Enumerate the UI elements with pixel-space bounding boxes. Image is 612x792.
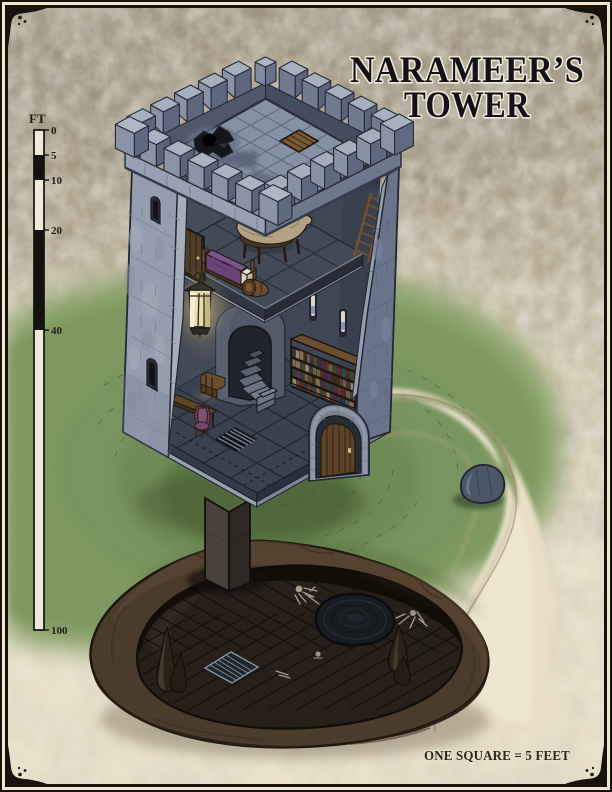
svg-text:100: 100 <box>51 625 68 637</box>
svg-text:40: 40 <box>51 325 63 337</box>
svg-text:10: 10 <box>51 175 63 187</box>
svg-text:ONE SQUARE = 5 FEET: ONE SQUARE = 5 FEET <box>424 749 570 764</box>
svg-text:20: 20 <box>51 225 63 237</box>
svg-text:0: 0 <box>51 125 57 137</box>
svg-text:5: 5 <box>51 150 57 162</box>
svg-text:TOWER: TOWER <box>404 85 531 126</box>
svg-text:FT: FT <box>29 111 46 126</box>
